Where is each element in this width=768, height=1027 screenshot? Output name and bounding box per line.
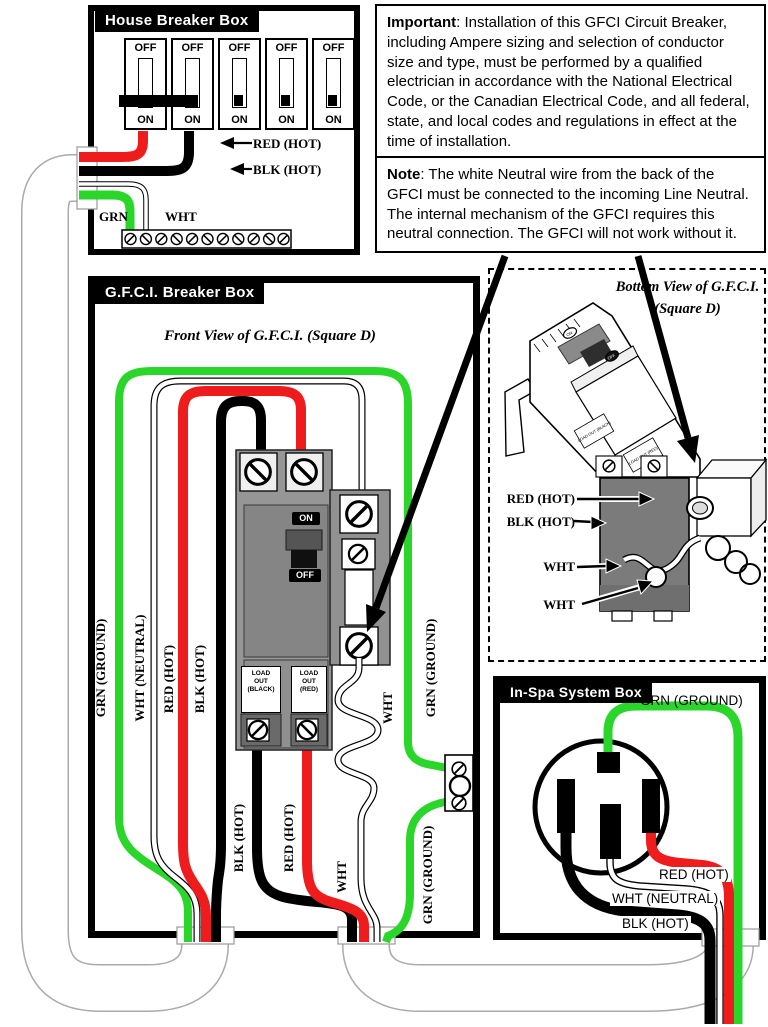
inspa-blk-label: BLK (HOT)	[620, 916, 691, 931]
breaker-off-label: OFF	[173, 42, 212, 54]
gfci-red-hot-label-left: RED (HOT)	[161, 645, 177, 713]
gfci-blk-hot-label-bottom: BLK (HOT)	[231, 804, 247, 872]
bv-wht-label-2: WHT	[505, 597, 575, 613]
breaker-off-label: OFF	[220, 42, 259, 54]
house-wht-label: WHT	[165, 209, 197, 225]
breaker-switch	[232, 58, 247, 108]
breaker-switch	[279, 58, 294, 108]
bv-blk-hot-label: BLK (HOT)	[505, 514, 575, 530]
breaker-3: OFF ON	[218, 38, 261, 130]
inspa-box-title: In-Spa System Box	[500, 681, 652, 703]
house-grn-label: GRN	[99, 209, 128, 225]
inspa-grn-label: GRN (GROUND)	[640, 693, 743, 708]
breaker-on-label: ON	[220, 114, 259, 126]
house-red-hot-label: RED (HOT)	[253, 136, 321, 152]
breaker-off-label: OFF	[267, 42, 306, 54]
important-lead: Important	[387, 14, 456, 31]
gfci-red-hot-label-bottom: RED (HOT)	[281, 804, 297, 872]
note-text-box: Note: The white Neutral wire from the ba…	[375, 156, 766, 253]
bottom-view-title: Bottom View of G.F.C.I.	[615, 279, 760, 296]
gfci-wht-label-bottom: WHT	[334, 861, 350, 893]
house-blk-hot-label: BLK (HOT)	[253, 162, 321, 178]
load-out-red-label: LOAD OUT (RED)	[291, 666, 327, 713]
note-lead: Note	[387, 166, 420, 183]
load-out-black-label: LOAD OUT (BLACK)	[241, 666, 281, 713]
breaker-on-label: ON	[267, 114, 306, 126]
breaker-on-label: ON	[173, 114, 212, 126]
gfci-wht-pigtail-label: WHT	[380, 692, 396, 724]
breaker-off-label: OFF	[126, 42, 165, 54]
gfci-grn-ground-label-left: GRN (GROUND)	[93, 619, 109, 718]
bottom-view-subtitle: (Square D)	[615, 301, 760, 318]
gfci-blk-hot-label-left: BLK (HOT)	[192, 645, 208, 713]
gfci-grn-ground-label-lower-right: GRN (GROUND)	[420, 826, 436, 925]
gfci-on-badge: ON	[292, 512, 320, 525]
breaker-1: OFF ON	[124, 38, 167, 130]
breaker-switch	[326, 58, 341, 108]
important-text-box: Important: Installation of this GFCI Cir…	[375, 4, 766, 161]
breaker-tie-bar	[119, 95, 198, 107]
breaker-2: OFF ON	[171, 38, 214, 130]
important-text: : Installation of this GFCI Circuit Brea…	[387, 14, 750, 150]
breaker-on-label: ON	[314, 114, 353, 126]
bv-red-hot-label: RED (HOT)	[505, 491, 575, 507]
gfci-box-title: G.F.C.I. Breaker Box	[95, 280, 264, 304]
note-text: : The white Neutral wire from the back o…	[387, 166, 749, 242]
wiring-diagram: Important: Installation of this GFCI Cir…	[0, 0, 768, 1027]
conduit-right	[366, 935, 730, 988]
gfci-off-badge: OFF	[289, 569, 321, 582]
breaker-4: OFF ON	[265, 38, 308, 130]
breaker-5: OFF ON	[312, 38, 355, 130]
breaker-on-label: ON	[126, 114, 165, 126]
gfci-subtitle: Front View of G.F.C.I. (Square D)	[150, 328, 390, 345]
inspa-red-label: RED (HOT)	[657, 867, 731, 882]
breaker-off-label: OFF	[314, 42, 353, 54]
gfci-grn-ground-label-upper-right: GRN (GROUND)	[423, 619, 439, 718]
inspa-wht-label: WHT (NEUTRAL)	[610, 891, 720, 906]
gfci-wht-neutral-label: WHT (NEUTRAL)	[132, 614, 148, 721]
bv-wht-label-1: WHT	[505, 559, 575, 575]
house-box-title: House Breaker Box	[95, 8, 259, 32]
